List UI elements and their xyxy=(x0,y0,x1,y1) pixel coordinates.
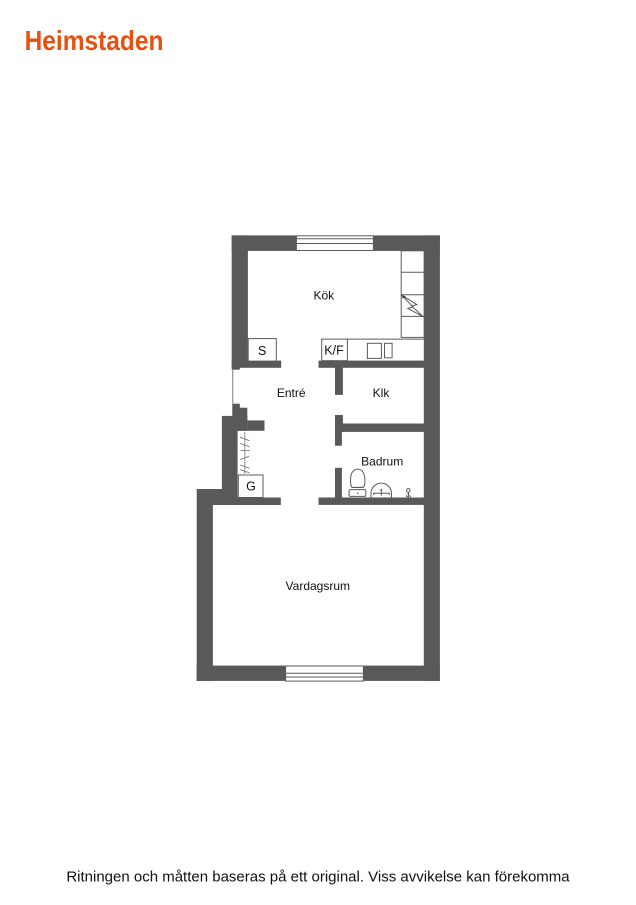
svg-text:Klk: Klk xyxy=(373,386,391,400)
svg-text:K/F: K/F xyxy=(324,343,344,357)
svg-text:Kök: Kök xyxy=(313,289,335,303)
svg-text:Heimstaden: Heimstaden xyxy=(25,25,164,57)
svg-text:S: S xyxy=(258,344,266,358)
svg-text:Badrum: Badrum xyxy=(361,455,403,469)
svg-text:G: G xyxy=(246,480,256,494)
svg-text:Entré: Entré xyxy=(277,386,306,400)
svg-text:Vardagsrum: Vardagsrum xyxy=(286,579,350,593)
svg-text:Ritningen och måtten baseras p: Ritningen och måtten baseras på ett orig… xyxy=(66,869,570,886)
